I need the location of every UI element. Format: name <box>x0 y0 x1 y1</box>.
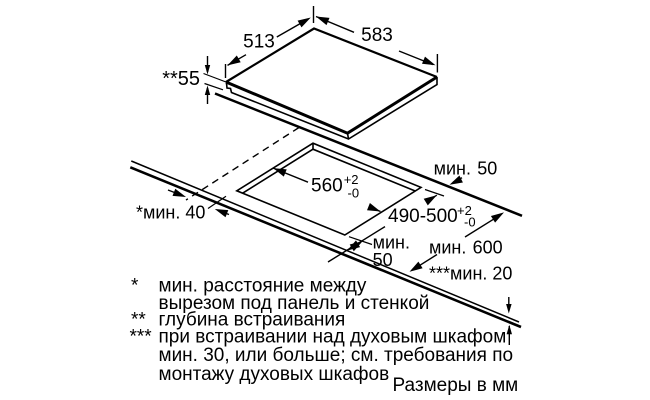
svg-text:560: 560 <box>311 176 343 197</box>
svg-text:*мин. 40: *мин. 40 <box>136 203 205 223</box>
svg-text:***мин. 20: ***мин. 20 <box>429 264 512 284</box>
svg-text:*: * <box>131 275 139 296</box>
svg-text:**55: **55 <box>162 68 200 90</box>
svg-text:513: 513 <box>243 32 275 53</box>
svg-text:-0: -0 <box>464 215 476 230</box>
svg-text:490-500: 490-500 <box>388 206 458 227</box>
svg-text:мин.: мин. <box>434 159 471 179</box>
svg-text:583: 583 <box>361 25 393 46</box>
svg-text:600: 600 <box>473 238 503 258</box>
svg-text:мин.: мин. <box>429 238 466 258</box>
svg-text:монтажу духовых шкафов: монтажу духовых шкафов <box>159 364 390 385</box>
svg-text:Размеры в мм: Размеры в мм <box>393 375 519 396</box>
svg-text:50: 50 <box>477 159 497 179</box>
svg-text:***: *** <box>130 327 153 348</box>
svg-text:50: 50 <box>373 250 393 270</box>
svg-text:-0: -0 <box>348 186 360 201</box>
